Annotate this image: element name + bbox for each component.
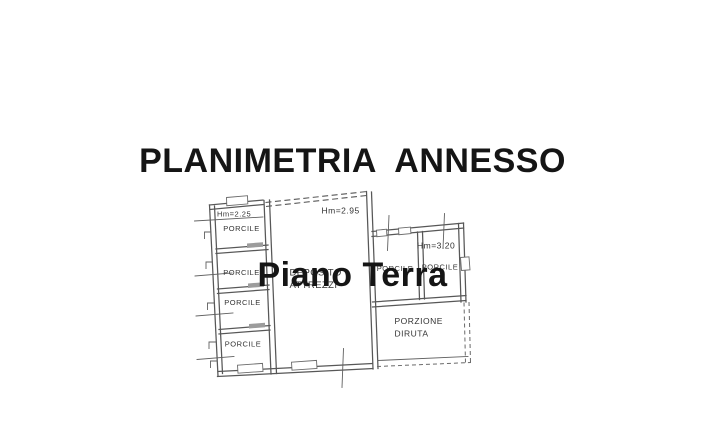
page-title: PLANIMETRIA ANNESSO Piano Terra (0, 66, 705, 370)
document-page: PLANIMETRIA ANNESSO Piano Terra (0, 0, 705, 434)
title-line-2: Piano Terra (0, 256, 705, 294)
title-line-1: PLANIMETRIA ANNESSO (0, 142, 705, 180)
